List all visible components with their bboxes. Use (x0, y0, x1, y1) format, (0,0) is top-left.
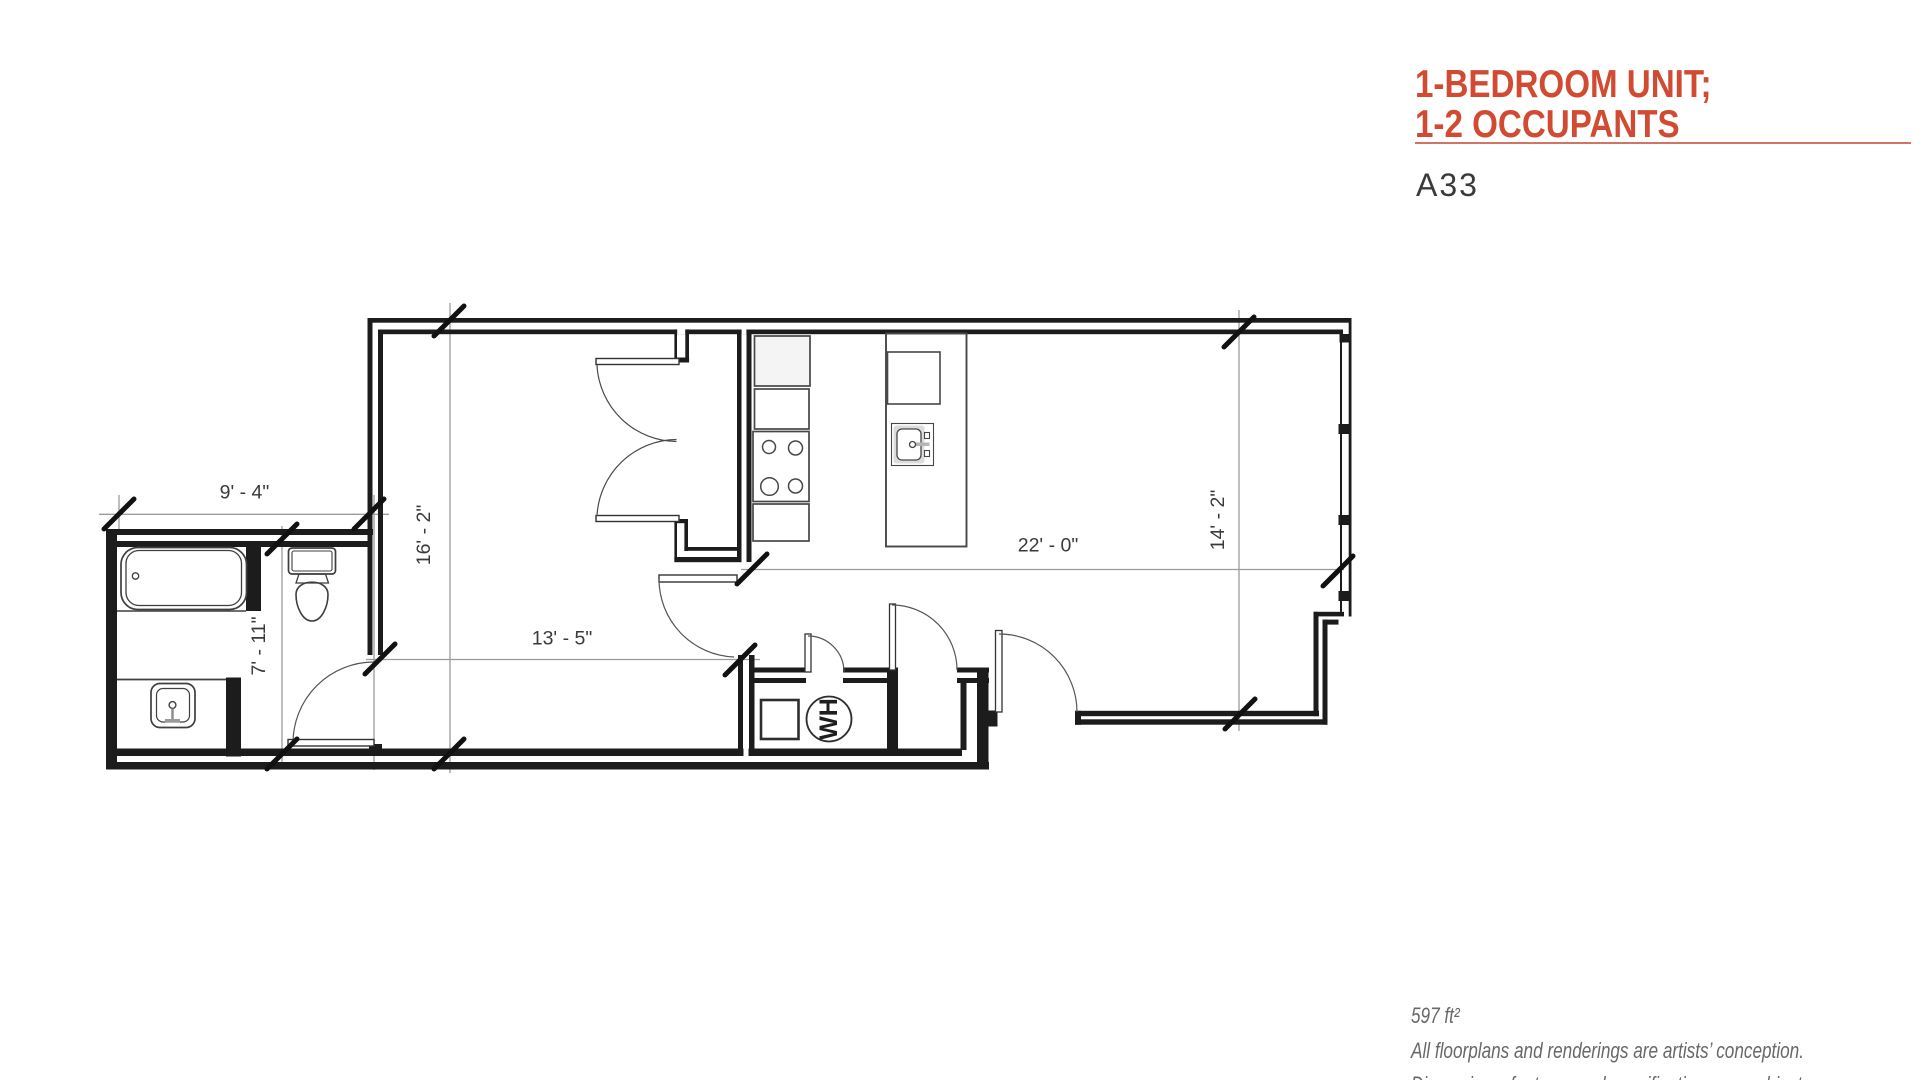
svg-text:22' - 0": 22' - 0" (1018, 535, 1079, 557)
svg-text:9' - 4": 9' - 4" (220, 482, 270, 504)
svg-text:16' - 2": 16' - 2" (413, 505, 435, 566)
svg-text:7' - 11": 7' - 11" (248, 616, 270, 675)
svg-text:13' - 5": 13' - 5" (532, 628, 593, 650)
svg-text:14' - 2": 14' - 2" (1207, 490, 1229, 551)
svg-text:WH: WH (815, 698, 843, 740)
